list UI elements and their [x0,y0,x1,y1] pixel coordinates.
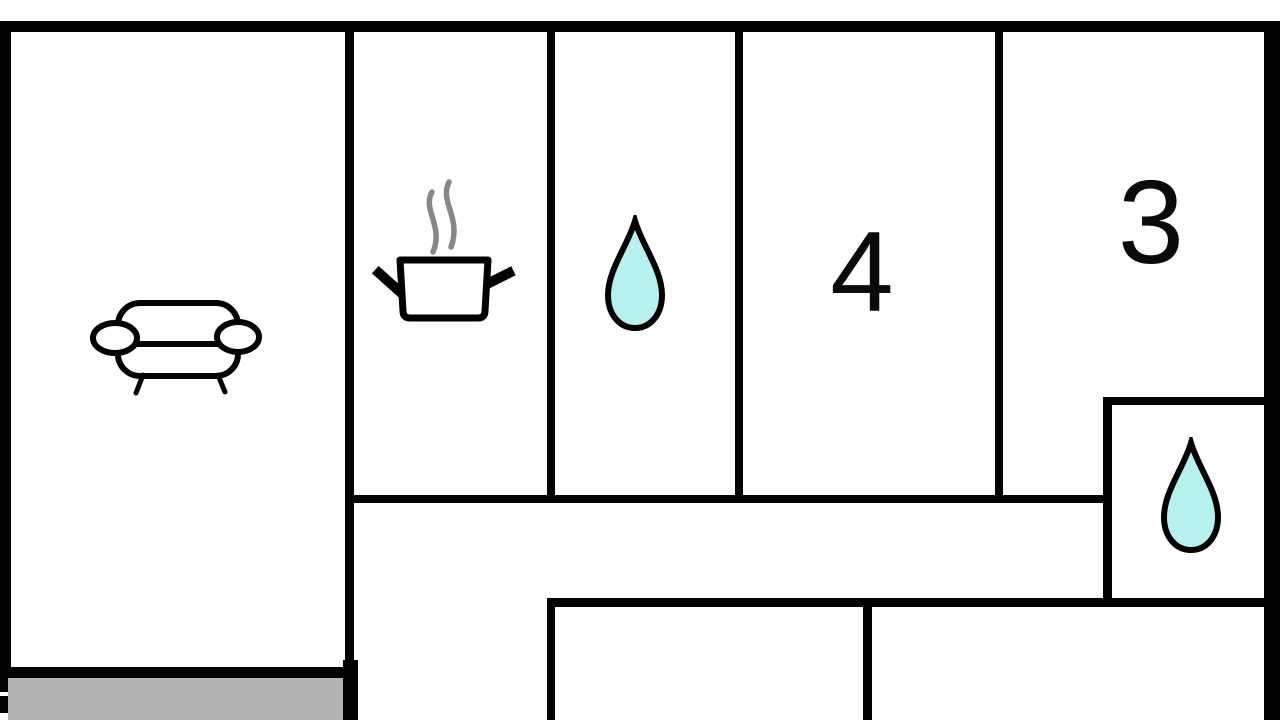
terrace-area [8,678,343,720]
sofa-icon [88,297,263,397]
bottom-room-divider-wall [863,598,872,720]
terrace-door-mark-top [0,676,8,692]
bottom-room-left-wall [547,598,555,720]
hallway [354,503,1103,598]
bedroom-4-label: 4 [802,213,922,333]
right-wall [1264,21,1280,720]
steam-icon [429,182,454,252]
water-drop-icon [1155,437,1227,557]
wall-bedroom4-bedroom3 [995,32,1003,503]
wall-living-kitchen [345,32,354,667]
left-wall [0,21,11,678]
hallway-top-wall [345,495,1112,503]
water-drop-icon [600,215,670,335]
bottom-room-left [555,607,863,720]
living-room-bottom-wall [8,667,358,678]
terrace-door-mark-bottom [0,696,8,713]
wall-kitchen-bathroom [547,32,555,503]
bottom-room-right [872,607,1264,720]
cooking-pot-icon [370,170,520,330]
wall-bathroom-bedroom4 [735,32,743,503]
top-wall [0,21,1280,32]
terrace-right-wall [343,660,358,720]
bedroom-3-label: 3 [1091,163,1211,283]
bathroom-right-top-wall [1103,397,1264,405]
hallway-bottom-wall [547,598,1264,607]
floor-plan: 4 3 [0,0,1280,720]
